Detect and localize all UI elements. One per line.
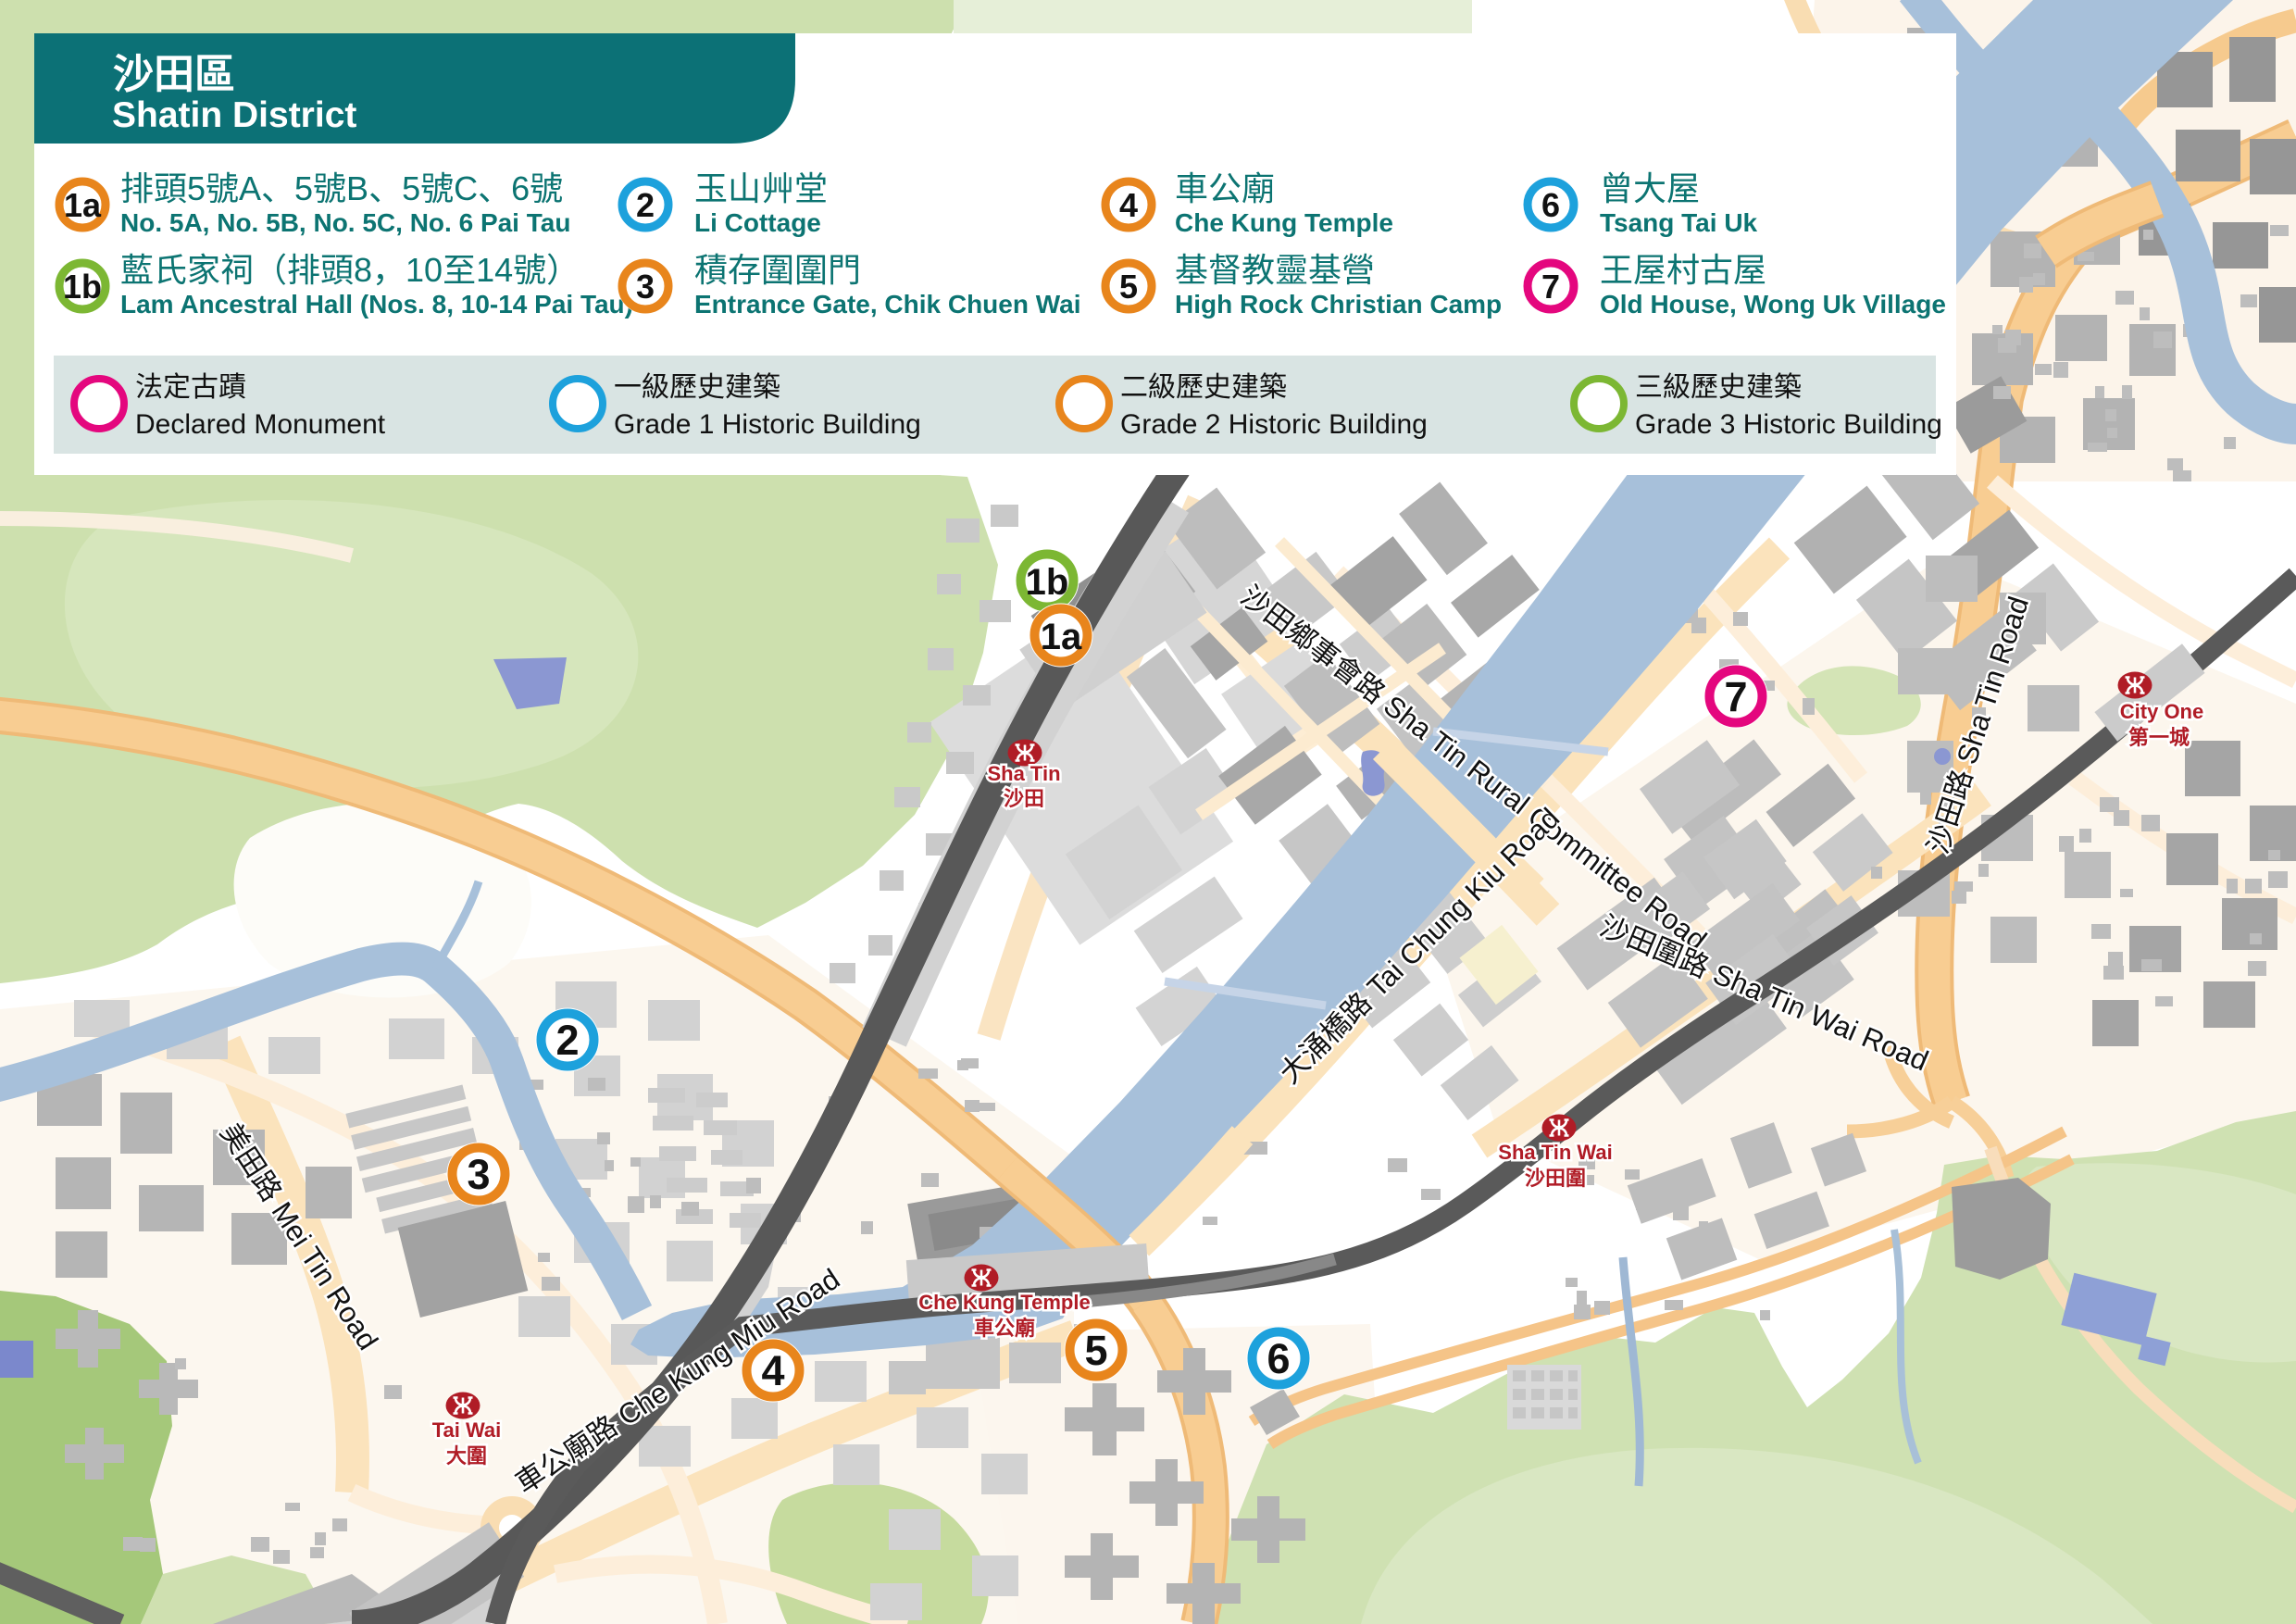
svg-text:City One: City One bbox=[2120, 700, 2203, 723]
svg-text:4: 4 bbox=[1119, 186, 1138, 224]
svg-text:7: 7 bbox=[1724, 673, 1747, 720]
svg-text:2: 2 bbox=[555, 1017, 579, 1064]
svg-text:沙田: 沙田 bbox=[1004, 787, 1044, 810]
svg-text:三級歷史建築: 三級歷史建築 bbox=[1635, 372, 1802, 403]
svg-text:沙田區: 沙田區 bbox=[113, 52, 235, 97]
svg-text:Grade 1 Historic Building: Grade 1 Historic Building bbox=[614, 409, 921, 440]
svg-text:排頭5號A、5號B、5號C、6號: 排頭5號A、5號B、5號C、6號 bbox=[120, 169, 563, 207]
svg-text:5: 5 bbox=[1084, 1327, 1107, 1374]
svg-text:積存圍圍門: 積存圍圍門 bbox=[694, 251, 861, 289]
svg-text:一級歷史建築: 一級歷史建築 bbox=[614, 372, 780, 403]
svg-text:1b: 1b bbox=[63, 268, 102, 306]
svg-text:大圍: 大圍 bbox=[446, 1444, 487, 1468]
svg-text:1b: 1b bbox=[1026, 562, 1069, 603]
svg-text:Tsang Tai Uk: Tsang Tai Uk bbox=[1600, 208, 1758, 237]
svg-text:玉山艸堂: 玉山艸堂 bbox=[694, 169, 828, 207]
svg-text:Lam Ancestral Hall (Nos. 8, 10: Lam Ancestral Hall (Nos. 8, 10-14 Pai Ta… bbox=[120, 290, 633, 319]
svg-text:High Rock Christian Camp: High Rock Christian Camp bbox=[1175, 290, 1502, 319]
svg-text:Declared Monument: Declared Monument bbox=[135, 409, 386, 440]
svg-text:Old House, Wong Uk Village: Old House, Wong Uk Village bbox=[1600, 290, 1946, 319]
svg-text:2: 2 bbox=[636, 186, 655, 224]
svg-text:王屋村古屋: 王屋村古屋 bbox=[1600, 251, 1766, 289]
svg-text:Che Kung Temple: Che Kung Temple bbox=[1175, 208, 1393, 237]
svg-text:Shatin District: Shatin District bbox=[112, 95, 356, 135]
svg-text:法定古蹟: 法定古蹟 bbox=[135, 372, 246, 403]
svg-text:4: 4 bbox=[761, 1347, 784, 1394]
svg-text:基督教靈基營: 基督教靈基營 bbox=[1175, 251, 1375, 289]
svg-text:1a: 1a bbox=[1041, 617, 1082, 657]
svg-text:No. 5A, No. 5B, No. 5C, No. 6: No. 5A, No. 5B, No. 5C, No. 6 Pai Tau bbox=[120, 208, 570, 237]
svg-text:6: 6 bbox=[1541, 186, 1560, 224]
svg-text:沙田圍: 沙田圍 bbox=[1525, 1167, 1586, 1190]
svg-text:5: 5 bbox=[1119, 268, 1138, 306]
svg-text:Li Cottage: Li Cottage bbox=[694, 208, 821, 237]
svg-text:Che Kung Temple: Che Kung Temple bbox=[918, 1291, 1090, 1314]
svg-text:3: 3 bbox=[467, 1151, 490, 1198]
svg-text:1a: 1a bbox=[64, 186, 102, 224]
svg-text:3: 3 bbox=[636, 268, 655, 306]
svg-text:藍氏家祠（排頭8，10至14號）: 藍氏家祠（排頭8，10至14號） bbox=[120, 251, 580, 289]
svg-text:Tai Wai: Tai Wai bbox=[432, 1418, 502, 1442]
svg-text:車公廟: 車公廟 bbox=[974, 1317, 1035, 1340]
svg-text:7: 7 bbox=[1541, 268, 1560, 306]
svg-text:車公廟: 車公廟 bbox=[1175, 169, 1275, 207]
svg-text:Grade 3 Historic Building: Grade 3 Historic Building bbox=[1635, 409, 1942, 440]
svg-text:6: 6 bbox=[1267, 1335, 1290, 1382]
svg-text:Sha Tin Wai: Sha Tin Wai bbox=[1498, 1141, 1612, 1164]
svg-text:Entrance Gate, Chik Chuen Wai: Entrance Gate, Chik Chuen Wai bbox=[694, 290, 1080, 319]
svg-text:Grade 2 Historic Building: Grade 2 Historic Building bbox=[1120, 409, 1428, 440]
svg-text:第一城: 第一城 bbox=[2128, 726, 2190, 749]
svg-text:二級歷史建築: 二級歷史建築 bbox=[1120, 372, 1287, 403]
svg-text:Sha Tin: Sha Tin bbox=[987, 762, 1060, 785]
svg-text:曾大屋: 曾大屋 bbox=[1600, 169, 1700, 207]
